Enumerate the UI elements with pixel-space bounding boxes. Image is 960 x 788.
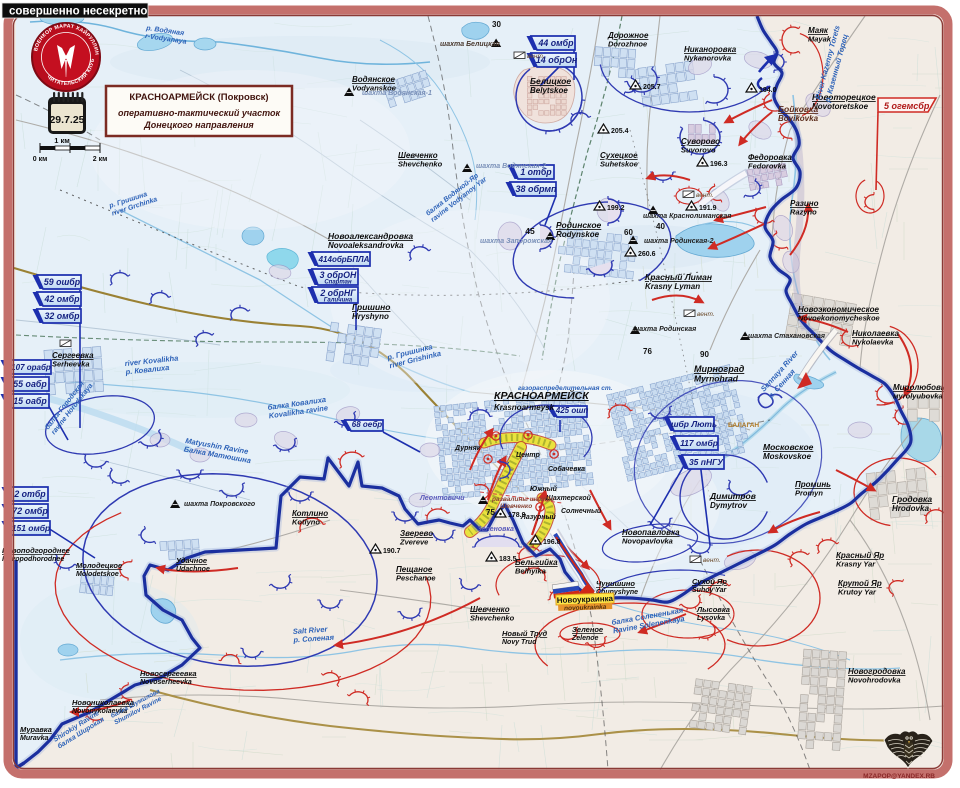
svg-text:Чунишино: Чунишино [596, 579, 635, 588]
svg-text:вент.: вент. [527, 53, 545, 60]
svg-text:425 ошп: 425 ошп [555, 406, 589, 415]
svg-text:Сухой Яр: Сухой Яр [692, 577, 727, 586]
svg-text:Южный: Южный [530, 485, 558, 493]
svg-text:Галичина: Галичина [324, 298, 353, 304]
svg-text:151 омбр: 151 омбр [12, 523, 50, 533]
svg-text:Московское: Московское [763, 442, 814, 452]
svg-text:шахта Водянская-2: шахта Водянская-2 [476, 162, 546, 170]
svg-text:Муравка: Муравка [20, 725, 52, 734]
svg-text:30: 30 [492, 20, 501, 29]
svg-text:Novohrodovka: Novohrodovka [848, 676, 901, 685]
svg-text:2 обрНГ: 2 обрНГ [319, 288, 356, 298]
svg-text:Шевченко: Шевченко [500, 503, 532, 510]
svg-text:Fedorovka: Fedorovka [748, 162, 786, 171]
svg-text:59 ошбр: 59 ошбр [44, 277, 81, 287]
svg-text:205.4: 205.4 [611, 128, 629, 135]
svg-text:191.9: 191.9 [699, 205, 717, 212]
svg-text:199.2: 199.2 [607, 205, 625, 212]
svg-text:Донецкого направления: Донецкого направления [143, 120, 254, 130]
svg-text:Molodetskoe: Molodetskoe [76, 571, 119, 578]
svg-text:вент.: вент. [703, 557, 721, 564]
svg-text:Novoaleksandrovka: Novoaleksandrovka [328, 241, 404, 250]
svg-text:Центр: Центр [516, 452, 540, 459]
svg-text:Peschanoe: Peschanoe [396, 574, 436, 583]
svg-text:вент.: вент. [696, 192, 714, 199]
svg-text:Леонтовичи: Леонтовичи [419, 495, 465, 502]
svg-text:Dorozhnoe: Dorozhnoe [608, 40, 647, 49]
svg-text:шахта Водянская-1: шахта Водянская-1 [362, 89, 432, 97]
svg-text:Зеленовка: Зеленовка [477, 526, 514, 533]
svg-text:Boyikovka: Boyikovka [778, 114, 819, 123]
svg-text:Novy Trud: Novy Trud [502, 639, 537, 646]
svg-text:90: 90 [700, 350, 709, 359]
svg-text:Красный Лиман: Красный Лиман [645, 272, 712, 282]
svg-text:Dymytrov: Dymytrov [710, 501, 747, 510]
svg-text:Удачное: Удачное [176, 556, 207, 565]
svg-text:Спартан: Спартан [324, 280, 352, 286]
svg-text:184.0: 184.0 [759, 87, 777, 94]
svg-text:развалины шахты: развалины шахты [491, 496, 555, 503]
svg-text:Гродовка: Гродовка [892, 494, 932, 504]
svg-text:Бойковка: Бойковка [778, 104, 818, 114]
svg-text:40: 40 [656, 222, 665, 231]
svg-text:мyrolyubovka: мyrolyubovka [893, 392, 943, 401]
svg-text:76: 76 [643, 347, 652, 356]
svg-text:45: 45 [525, 226, 535, 236]
svg-text:190.7: 190.7 [383, 548, 401, 555]
svg-text:Myrnohrad: Myrnohrad [694, 374, 739, 384]
svg-text:вент.: вент. [697, 311, 715, 318]
svg-text:novoukrainka: novoukrainka [564, 604, 607, 612]
svg-text:Зеленое: Зеленое [572, 625, 603, 634]
svg-text:1 км: 1 км [54, 136, 70, 145]
svg-text:БАЛАГАН: БАЛАГАН [728, 422, 759, 429]
svg-text:117 омбр: 117 омбр [680, 438, 718, 448]
svg-text:шахта Краснолиманская: шахта Краснолиманская [643, 213, 731, 220]
svg-text:Krasny Yar: Krasny Yar [836, 560, 876, 569]
svg-text:шахта Покровского: шахта Покровского [184, 501, 256, 508]
svg-text:Novoekonomycheskoe: Novoekonomycheskoe [798, 314, 880, 323]
svg-text:совершенно несекретно: совершенно несекретно [9, 6, 147, 18]
svg-text:Лысовка: Лысовка [696, 605, 730, 614]
svg-text:Suhoy Yar: Suhoy Yar [692, 587, 728, 594]
svg-text:оперативно-тактический участок: оперативно-тактический участок [118, 108, 281, 118]
svg-text:68 оебр: 68 оебр [352, 420, 383, 429]
svg-text:5 огемсбр: 5 огемсбр [884, 101, 930, 111]
svg-text:шахта Белицкая: шахта Белицкая [440, 41, 500, 48]
svg-text:Лазурный: Лазурный [520, 513, 556, 521]
svg-text:Suvorovo: Suvorovo [681, 146, 716, 155]
svg-text:Belytskoe: Belytskoe [530, 86, 568, 95]
svg-text:196.3: 196.3 [710, 161, 728, 168]
svg-text:15 оабр: 15 оабр [13, 396, 47, 406]
svg-text:42 омбр: 42 омбр [44, 294, 81, 304]
svg-text:MZAPOP@YANDEX.RB: MZAPOP@YANDEX.RB [863, 773, 935, 780]
svg-text:Kotlyno: Kotlyno [292, 518, 320, 527]
svg-text:60: 60 [624, 228, 633, 237]
svg-text:55 оабр: 55 оабр [13, 379, 47, 389]
svg-text:205.7: 205.7 [643, 84, 661, 91]
svg-text:Дурняк: Дурняк [454, 445, 481, 452]
svg-text:Udachnoe: Udachnoe [176, 566, 210, 573]
svg-text:шбр Лють: шбр Лють [671, 419, 717, 429]
svg-text:183.5: 183.5 [499, 556, 517, 563]
svg-text:Krasny Lyman: Krasny Lyman [645, 282, 700, 291]
svg-text:2 км: 2 км [93, 156, 108, 163]
svg-text:Zvereve: Zvereve [399, 538, 428, 547]
svg-text:35 пНГУ: 35 пНГУ [689, 457, 724, 467]
svg-text:Serheevka: Serheevka [52, 360, 90, 369]
svg-text:Razyno: Razyno [790, 208, 817, 217]
svg-text:шахта Стахановская: шахта Стахановская [748, 333, 825, 340]
svg-text:Rodynskoe: Rodynskoe [556, 230, 600, 239]
svg-text:32 омбр: 32 омбр [45, 311, 81, 321]
svg-text:196.8: 196.8 [543, 539, 561, 546]
svg-text:Новоалександровка: Новоалександровка [328, 231, 413, 241]
svg-text:Lysovka: Lysovka [697, 615, 725, 622]
svg-text:Собачевка: Собачевка [548, 465, 585, 473]
svg-text:Белицкое: Белицкое [530, 76, 571, 86]
svg-text:Novopavlovka: Novopavlovka [622, 537, 673, 546]
svg-text:Suhetskoe: Suhetskoe [600, 160, 638, 169]
svg-text:КРАСНОАРМЕЙСК (Покровск): КРАСНОАРМЕЙСК (Покровск) [129, 91, 268, 103]
svg-text:Nykanorovka: Nykanorovka [684, 54, 731, 63]
svg-text:107 орабр: 107 орабр [11, 363, 51, 372]
svg-text:Hrodovka: Hrodovka [892, 504, 929, 513]
svg-text:Novoserheevka: Novoserheevka [140, 679, 192, 686]
svg-text:Гришино: Гришино [352, 302, 390, 312]
svg-text:Zelenoe: Zelenoe [571, 635, 599, 642]
svg-text:газораспределительная ст.: газораспределительная ст. [518, 384, 613, 392]
svg-text:75: 75 [486, 508, 495, 517]
svg-text:Promyn: Promyn [795, 489, 823, 498]
svg-text:Солнечный: Солнечный [561, 507, 602, 515]
svg-text:Родинское: Родинское [556, 220, 602, 230]
svg-text:Krasnoarmeysk: Krasnoarmeysk [494, 403, 555, 412]
svg-text:29.7.25: 29.7.25 [49, 114, 84, 126]
svg-text:Димитров: Димитров [709, 491, 756, 501]
svg-text:3 обрОН: 3 обрОН [320, 270, 357, 280]
svg-text:Мирноград: Мирноград [694, 364, 745, 374]
svg-text:Nykolaevka: Nykolaevka [852, 338, 893, 347]
svg-text:шахта Родинская: шахта Родинская [633, 325, 696, 333]
svg-text:0 км: 0 км [33, 156, 48, 163]
svg-text:260.6: 260.6 [638, 251, 656, 258]
svg-text:72 омбр: 72 омбр [12, 506, 48, 516]
svg-text:44 омбр: 44 омбр [538, 38, 575, 48]
svg-text:Молодецкое: Молодецкое [76, 561, 122, 570]
svg-text:шахта Запорожская: шахта Запорожская [480, 238, 552, 245]
svg-text:Новый Труд: Новый Труд [502, 629, 548, 638]
svg-text:Shevchenko: Shevchenko [398, 160, 443, 169]
svg-text:Hryshyno: Hryshyno [352, 312, 389, 321]
svg-text:Muravka: Muravka [20, 735, 49, 742]
svg-text:Новосергеевка: Новосергеевка [140, 669, 197, 678]
svg-text:Novotoretskoe: Novotoretskoe [812, 102, 869, 111]
svg-text:Krutoy Yar: Krutoy Yar [838, 588, 877, 597]
svg-text:2 отбр: 2 отбр [13, 489, 46, 499]
svg-text:шахта Родинская-2: шахта Родинская-2 [644, 237, 714, 245]
svg-text:Moskovskoe: Moskovskoe [763, 452, 812, 461]
svg-text:414обрБПЛА: 414обрБПЛА [318, 255, 370, 264]
svg-text:38 обрмп: 38 обрмп [515, 184, 557, 194]
svg-text:Shevchenko: Shevchenko [470, 614, 515, 623]
svg-text:Belhyika: Belhyika [515, 567, 546, 576]
